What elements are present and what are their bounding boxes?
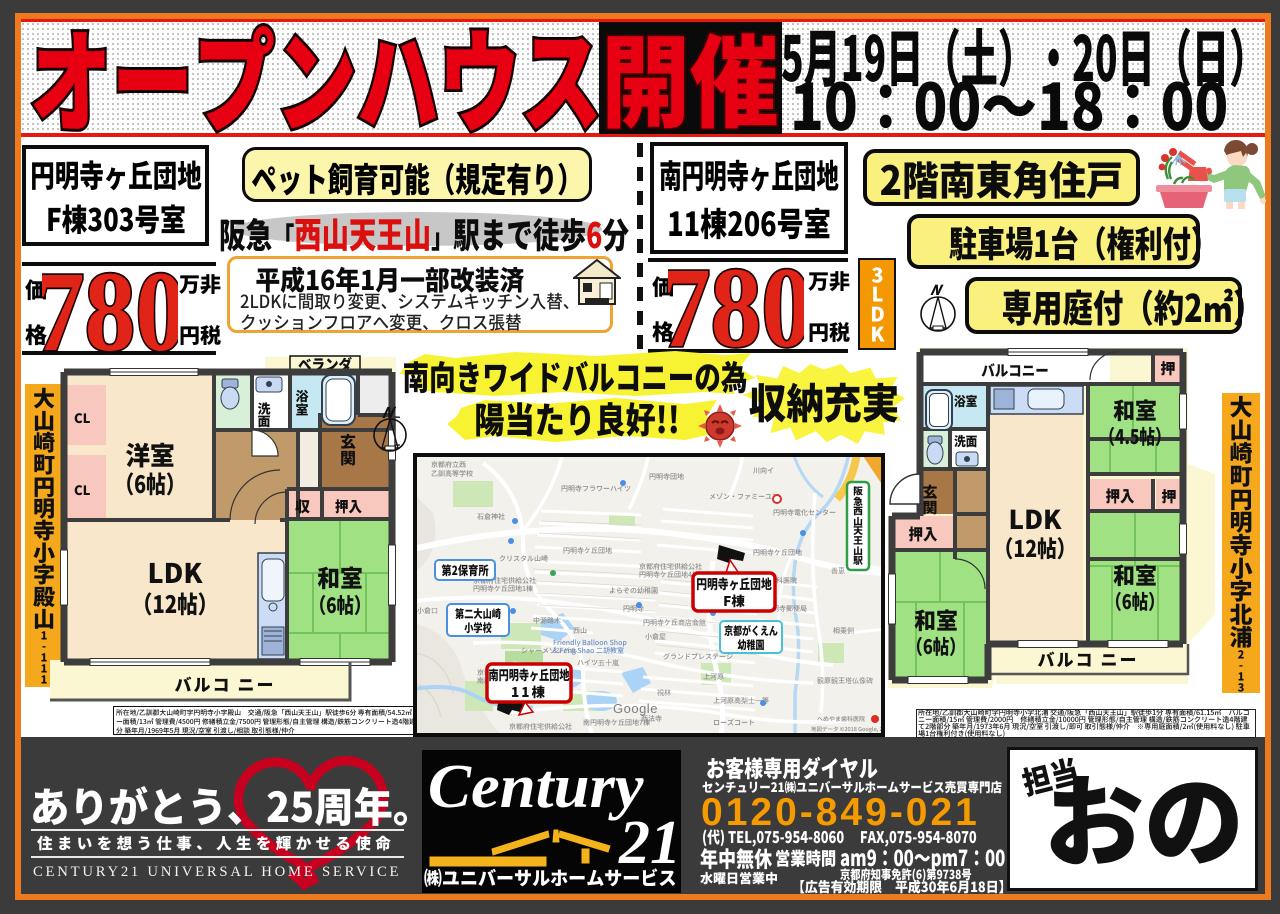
svg-text:西山: 西山 [573,626,587,636]
svg-text:Century: Century [428,751,644,821]
svg-text:円明寺ケ丘団地1棟: 円明寺ケ丘団地1棟 [473,584,533,594]
svg-text:（12帖）: （12帖） [132,586,218,620]
svg-text:相乗側: 相乗側 [833,626,854,636]
svg-text:小倉屋: 小倉屋 [645,632,666,642]
svg-text:円明寺ケ丘団地4棟: 円明寺ケ丘団地4棟 [639,570,699,580]
svg-text:中源路木: 中源路木 [533,616,561,626]
svg-text:乙訓高等学校: 乙訓高等学校 [431,469,473,479]
svg-text:阪急西山天王山駅: 阪急西山天王山駅 [851,486,865,565]
svg-text:小学校: 小学校 [464,619,492,636]
svg-text:（6帖）: （6帖） [309,589,371,620]
svg-text:円明寺ケ丘団地: 円明寺ケ丘団地 [563,546,612,556]
svg-text:善恵: 善恵 [831,566,845,576]
svg-text:観原観王塔仏像碑: 観原観王塔仏像碑 [817,676,873,686]
svg-text:南円明寺ケ丘団地7棟: 南円明寺ケ丘団地7棟 [583,718,650,728]
svg-text:上河原: 上河原 [703,672,724,682]
svg-text:780: 780 [42,260,178,356]
svg-text:押: 押 [1160,358,1175,379]
svg-text:（6帖）: （6帖） [906,632,965,660]
svg-text:浴室: 浴室 [954,391,977,410]
svg-text:Google: Google [613,701,658,716]
svg-text:ローズコート: ローズコート [713,718,755,728]
svg-text:（6帖）: （6帖） [114,467,185,501]
svg-text:浴室: 浴室 [293,389,312,415]
svg-text:CL: CL [74,408,91,427]
svg-text:バルコニー: バルコニー [981,359,1048,381]
svg-text:11棟: 11棟 [511,681,547,701]
svg-text:京都府住宅供給公社: 京都府住宅供給公社 [509,722,572,732]
svg-text:川向イ: 川向イ [753,466,774,476]
svg-text:押入: 押入 [1106,484,1135,507]
svg-text:オープンハウス: オープンハウス [30,20,602,136]
svg-text:陽当たり良好!!: 陽当たり良好!! [474,391,679,444]
svg-text:押入: 押入 [335,495,362,517]
svg-text:収納充実: 収納充実 [749,371,899,431]
svg-text:玄関: 玄関 [920,484,941,515]
svg-text:メゾン・ファミーユ3A: メゾン・ファミーユ3A [709,492,781,502]
svg-text:クリスタル山崎: クリスタル山崎 [499,554,548,564]
svg-text:へめやま歯科医院: へめやま歯科医院 [817,714,865,723]
svg-text:円明寺フラワーハイツ: 円明寺フラワーハイツ [561,484,631,494]
svg-text:ハイツ五十嵐: ハイツ五十嵐 [577,658,619,668]
svg-text:幼稚園: 幼稚園 [738,636,765,653]
svg-text:地図データ ©2018 Google, ZENRIN: 地図データ ©2018 Google, ZENRIN [811,725,885,733]
svg-text:よらぞの幼稚園: よらぞの幼稚園 [609,586,658,596]
svg-text:円明寺ケ丘商店会館: 円明寺ケ丘商店会館 [643,618,706,628]
svg-text:バルコ ニー: バルコ ニー [1038,646,1139,671]
svg-text:& Feng Shao 二胡教室: & Feng Shao 二胡教室 [553,646,624,656]
svg-text:㈱ユニバーサルホームサービス: ㈱ユニバーサルホームサービス [424,864,676,891]
svg-text:（6帖）: （6帖） [1105,587,1164,615]
svg-text:洗面: 洗面 [954,431,977,450]
svg-text:（12帖）: （12帖） [994,531,1076,564]
svg-text:CL: CL [74,480,91,499]
svg-text:円明寺ケ丘団地: 円明寺ケ丘団地 [753,548,802,558]
svg-text:バルコ ニー: バルコ ニー [175,671,276,696]
svg-text:収: 収 [295,496,310,517]
svg-text:押: 押 [1161,486,1176,507]
svg-text:視林: 視林 [657,688,671,698]
svg-text:玄関: 玄関 [336,433,360,466]
svg-text:円明寺団地: 円明寺団地 [649,472,684,482]
svg-text:開催: 開催 [601,22,779,134]
svg-text:780: 780 [668,256,804,352]
svg-text:小倉口: 小倉口 [417,606,438,616]
svg-text:石倉神社: 石倉神社 [477,512,505,522]
svg-text:洗面: 洗面 [255,401,274,428]
svg-text:（4.5帖）: （4.5帖） [1099,422,1170,451]
svg-text:F棟: F棟 [723,590,745,610]
svg-text:円明寺電化センター: 円明寺電化センター [773,508,836,518]
svg-text:押入: 押入 [909,522,938,545]
svg-text:第2保育所: 第2保育所 [441,562,489,579]
